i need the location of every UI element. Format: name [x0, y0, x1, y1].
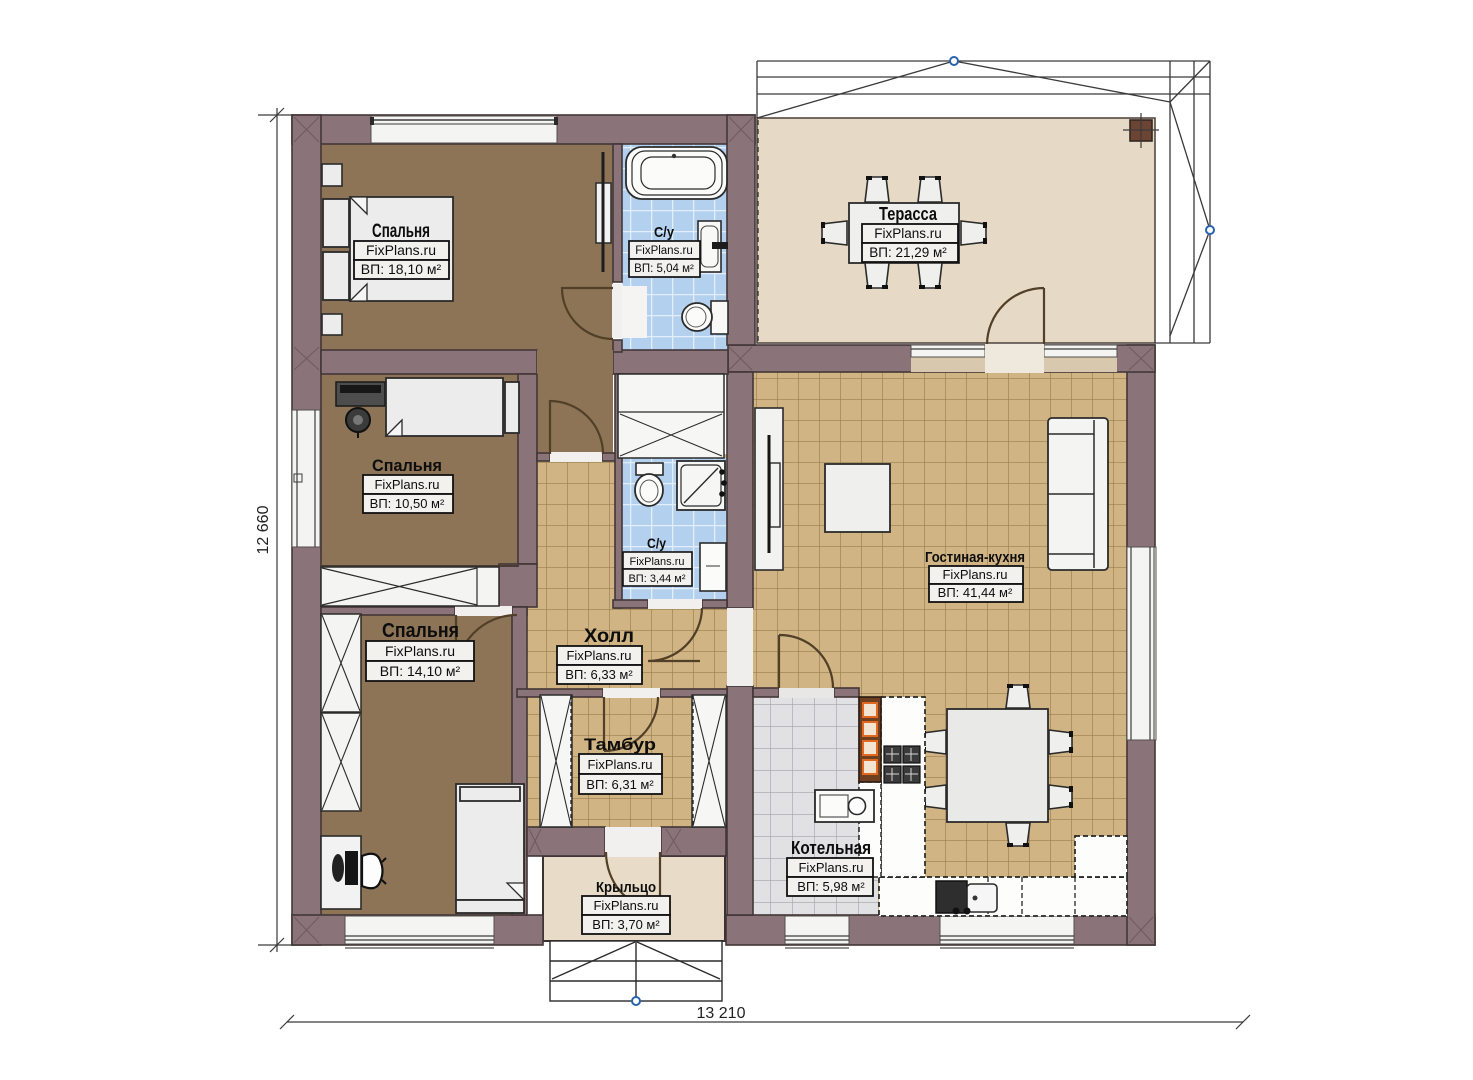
svg-text:С/у: С/у — [654, 224, 675, 241]
svg-text:ВП: 10,50 м²: ВП: 10,50 м² — [370, 496, 445, 511]
svg-text:Спальня: Спальня — [372, 456, 442, 475]
svg-text:ВП: 5,98 м²: ВП: 5,98 м² — [797, 879, 865, 894]
svg-text:FixPlans.ru: FixPlans.ru — [587, 757, 652, 772]
svg-text:ВП: 3,70 м²: ВП: 3,70 м² — [592, 917, 660, 932]
svg-text:FixPlans.ru: FixPlans.ru — [593, 898, 658, 913]
svg-text:12 660: 12 660 — [255, 505, 272, 554]
svg-text:Спальня: Спальня — [382, 620, 459, 642]
svg-text:FixPlans.ru: FixPlans.ru — [374, 477, 439, 492]
svg-text:ВП: 21,29 м²: ВП: 21,29 м² — [869, 245, 947, 260]
svg-text:Тамбур: Тамбур — [584, 735, 656, 754]
svg-text:Крыльцо: Крыльцо — [596, 879, 656, 896]
svg-text:Спальня: Спальня — [372, 221, 430, 242]
svg-text:FixPlans.ru: FixPlans.ru — [942, 567, 1007, 582]
svg-text:Гостиная-кухня: Гостиная-кухня — [925, 549, 1025, 566]
svg-text:Холл: Холл — [584, 626, 634, 647]
svg-text:FixPlans.ru: FixPlans.ru — [874, 226, 942, 241]
svg-text:ВП: 6,31 м²: ВП: 6,31 м² — [586, 777, 654, 792]
svg-text:ВП: 14,10 м²: ВП: 14,10 м² — [380, 663, 461, 679]
svg-text:13 210: 13 210 — [697, 1005, 746, 1022]
svg-text:FixPlans.ru: FixPlans.ru — [629, 556, 684, 568]
svg-text:Котельная: Котельная — [791, 838, 871, 858]
svg-text:FixPlans.ru: FixPlans.ru — [385, 643, 455, 659]
svg-text:ВП: 18,10 м²: ВП: 18,10 м² — [361, 261, 442, 277]
svg-text:FixPlans.ru: FixPlans.ru — [366, 242, 436, 258]
svg-text:FixPlans.ru: FixPlans.ru — [798, 860, 863, 875]
svg-text:FixPlans.ru: FixPlans.ru — [566, 648, 631, 663]
svg-text:ВП: 3,44 м²: ВП: 3,44 м² — [628, 573, 685, 585]
svg-text:С/у: С/у — [647, 535, 666, 551]
svg-text:Терасса: Терасса — [879, 204, 938, 224]
svg-text:ВП: 41,44 м²: ВП: 41,44 м² — [938, 585, 1013, 600]
svg-text:ВП: 6,33 м²: ВП: 6,33 м² — [565, 667, 633, 682]
svg-text:ВП: 5,04 м²: ВП: 5,04 м² — [634, 263, 694, 275]
svg-text:FixPlans.ru: FixPlans.ru — [635, 245, 693, 257]
